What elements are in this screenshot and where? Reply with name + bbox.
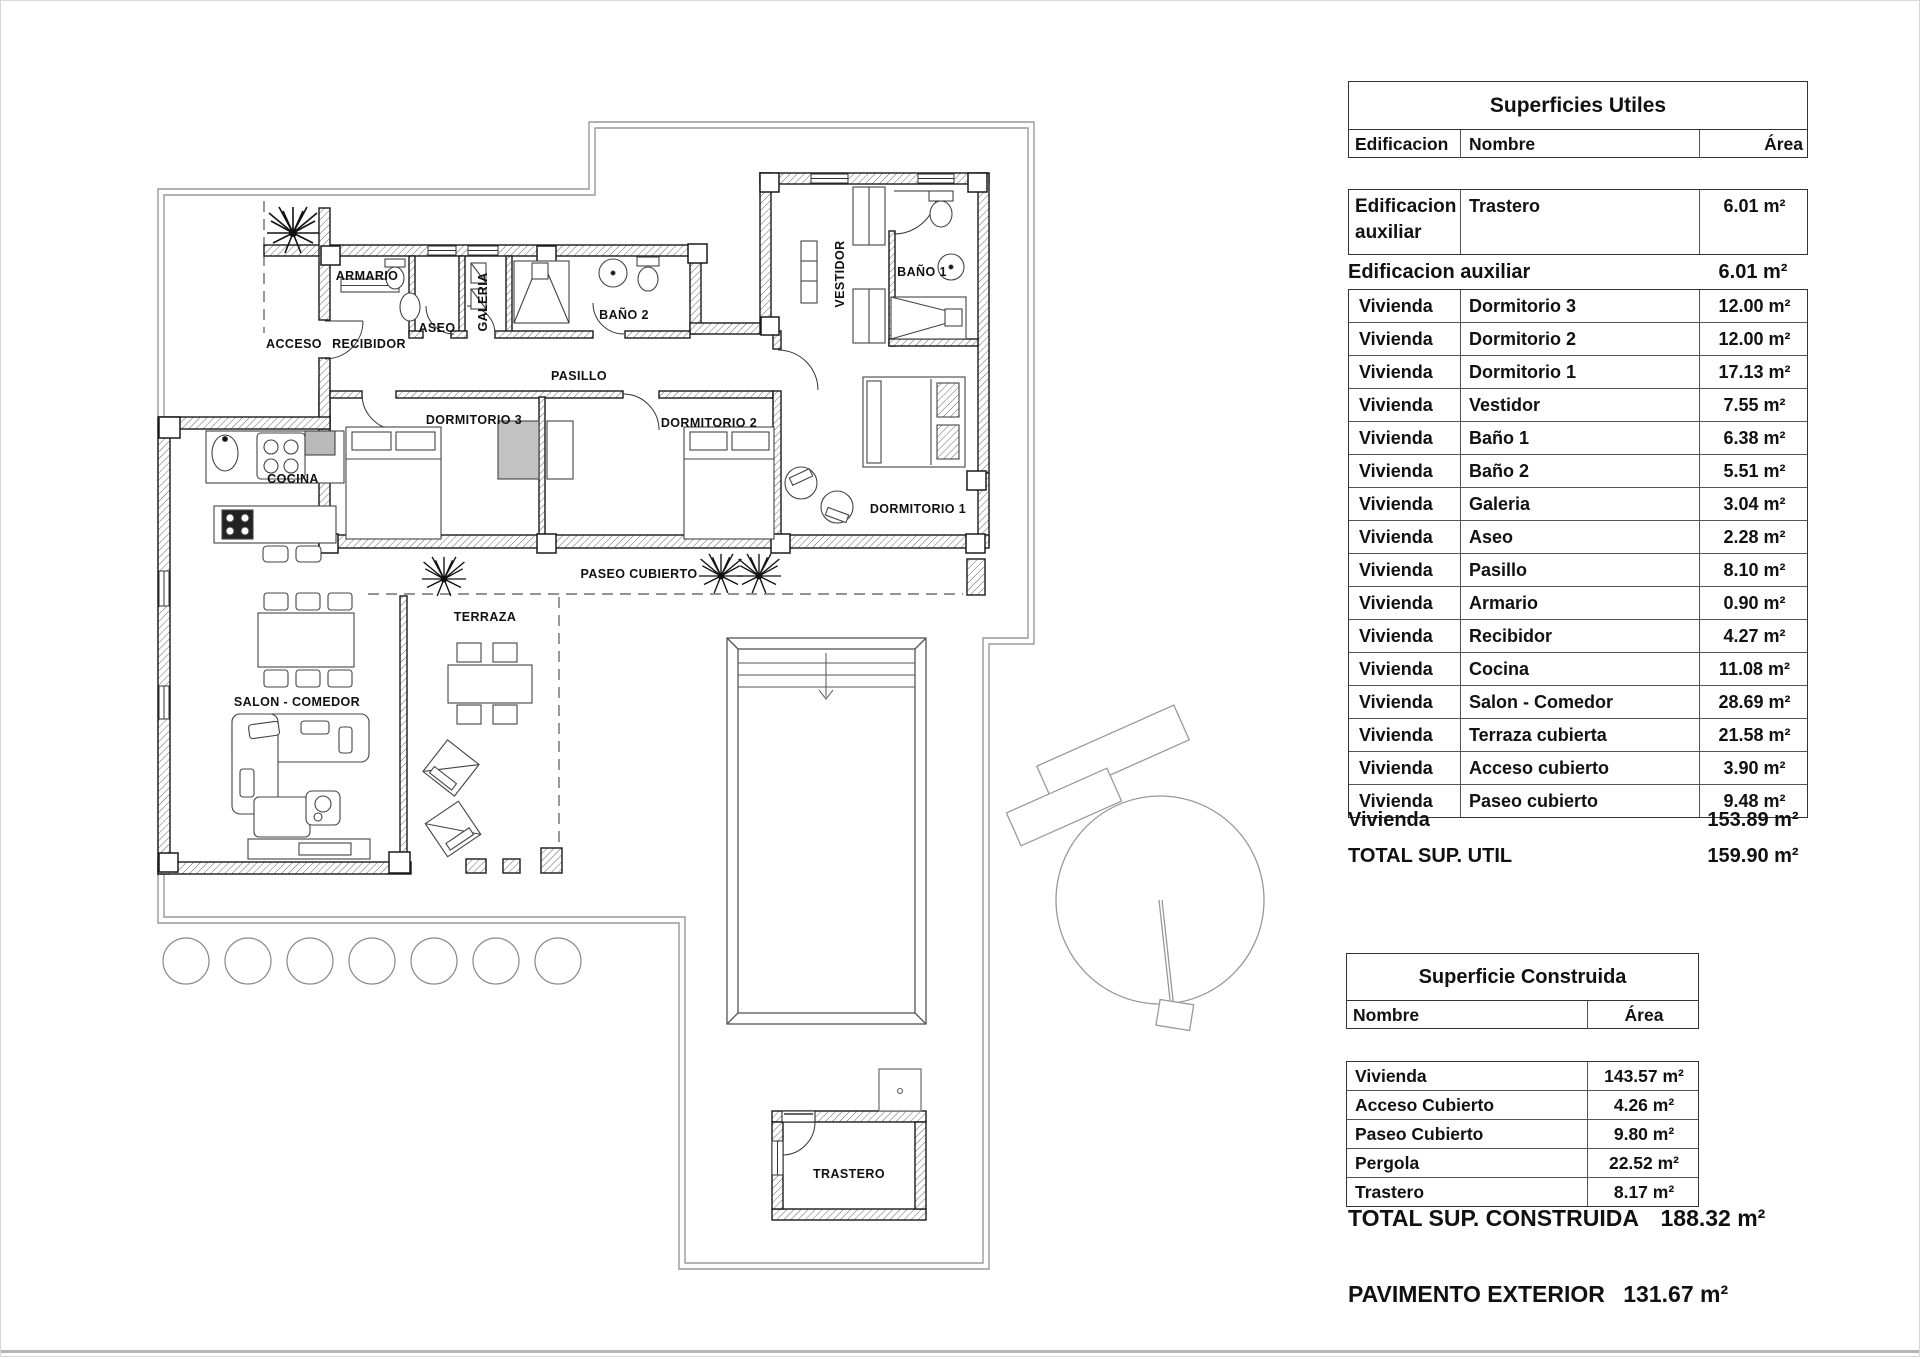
aux-row-edificacion: Edificacion auxiliar	[1349, 190, 1460, 254]
label-galeria: GALERIA	[476, 272, 490, 331]
pool	[727, 638, 926, 1024]
floor-plan-page: ARMARIO ACCESO RECIBIDOR ASEO GALERIA BA…	[0, 0, 1920, 1357]
label-dormitorio1: DORMITORIO 1	[870, 502, 966, 516]
label-paseo-cubierto: PASEO CUBIERTO	[581, 567, 698, 581]
table1-title: Superficies Utiles	[1349, 82, 1807, 130]
sink-aseo	[400, 293, 420, 321]
total-construida-row: TOTAL SUP. CONSTRUIDA 188.32 m²	[1348, 1205, 1765, 1232]
total-util-area: 159.90 m²	[1698, 845, 1808, 868]
label-dormitorio3: DORMITORIO 3	[426, 413, 522, 427]
aux-row-nombre: Trastero	[1460, 190, 1699, 254]
kitchen-island	[214, 506, 336, 562]
pergola	[1006, 705, 1264, 1030]
table1-header-area: Área	[1699, 130, 1809, 158]
trastero-building	[772, 1069, 926, 1220]
sofa	[232, 714, 369, 837]
label-cocina: COCINA	[267, 472, 319, 486]
bed-dorm3	[346, 427, 441, 539]
label-bano1: BAÑO 1	[897, 264, 947, 279]
table2-header-nombre: Nombre	[1347, 1001, 1587, 1029]
construida-rows: Vivienda143.57 m² Acceso Cubierto4.26 m²…	[1346, 1061, 1699, 1207]
table-row: ViviendaSalon - Comedor28.69 m²	[1349, 686, 1807, 719]
table-row: ViviendaGaleria3.04 m²	[1349, 488, 1807, 521]
label-pasillo: PASILLO	[551, 369, 607, 383]
total-util-row: TOTAL SUP. UTIL 159.90 m²	[1348, 839, 1808, 873]
label-aseo: ASEO	[418, 321, 455, 335]
table-row: ViviendaDormitorio 212.00 m²	[1349, 323, 1807, 356]
label-bano2: BAÑO 2	[599, 307, 649, 322]
armchair-1	[785, 467, 817, 499]
aux-summary-label: Edificacion auxiliar	[1348, 261, 1530, 284]
closet-white	[547, 421, 573, 479]
total-construida-label: TOTAL SUP. CONSTRUIDA	[1348, 1205, 1638, 1231]
label-armario: ARMARIO	[336, 269, 399, 283]
table-row: Paseo Cubierto9.80 m²	[1347, 1120, 1698, 1149]
stove	[306, 791, 340, 825]
lounge-chair-2	[425, 801, 481, 857]
bed-dorm1	[863, 377, 965, 467]
bushes-row	[163, 938, 581, 984]
table-row: ViviendaAseo2.28 m²	[1349, 521, 1807, 554]
label-terraza: TERRAZA	[454, 610, 517, 624]
vivienda-rows: ViviendaDormitorio 312.00 m² ViviendaDor…	[1348, 289, 1808, 818]
toilet-bano1	[929, 191, 953, 227]
room-labels: ARMARIO ACCESO RECIBIDOR ASEO GALERIA BA…	[234, 240, 966, 1181]
table-row: Trastero8.17 m²	[1347, 1178, 1698, 1206]
aux-row: Edificacion auxiliar Trastero 6.01 m²	[1348, 189, 1808, 255]
table1-header-edificacion: Edificacion	[1349, 130, 1460, 158]
pavimento-label: PAVIMENTO EXTERIOR	[1348, 1281, 1605, 1307]
table-row: ViviendaPasillo8.10 m²	[1349, 554, 1807, 587]
terrace-table	[448, 643, 532, 724]
label-vestidor: VESTIDOR	[833, 240, 847, 307]
bed-dorm2	[684, 427, 774, 539]
toilet-bano2	[637, 257, 659, 291]
shelves	[801, 241, 817, 303]
shower-bano1	[891, 297, 966, 339]
ac-unit	[879, 1069, 921, 1111]
table2-header-area: Área	[1587, 1001, 1700, 1029]
table-row: ViviendaDormitorio 312.00 m²	[1349, 290, 1807, 323]
lounge-chair-1	[423, 740, 479, 796]
pavimento-row: PAVIMENTO EXTERIOR 131.67 m²	[1348, 1281, 1728, 1308]
shower-bano2	[514, 261, 569, 323]
table-row: ViviendaCocina11.08 m²	[1349, 653, 1807, 686]
table1-header-nombre: Nombre	[1460, 130, 1699, 158]
page-bottom-rule	[1, 1350, 1920, 1353]
total-util-label: TOTAL SUP. UTIL	[1348, 845, 1512, 868]
vivienda-summary-label: Vivienda	[1348, 809, 1430, 832]
table-row: ViviendaBaño 16.38 m²	[1349, 422, 1807, 455]
dining-table	[258, 593, 354, 687]
table-row: ViviendaArmario0.90 m²	[1349, 587, 1807, 620]
table-row: ViviendaRecibidor4.27 m²	[1349, 620, 1807, 653]
total-construida-area: 188.32 m²	[1660, 1205, 1765, 1231]
aux-summary-area: 6.01 m²	[1698, 261, 1808, 284]
table-row: ViviendaBaño 25.51 m²	[1349, 455, 1807, 488]
pavimento-area: 131.67 m²	[1623, 1281, 1728, 1307]
vivienda-summary-area: 153.89 m²	[1698, 809, 1808, 832]
table-row: Acceso Cubierto4.26 m²	[1347, 1091, 1698, 1120]
label-salon-comedor: SALON - COMEDOR	[234, 695, 360, 709]
table-row: ViviendaAcceso cubierto3.90 m²	[1349, 752, 1807, 785]
table-row: ViviendaTerraza cubierta21.58 m²	[1349, 719, 1807, 752]
closet-gray	[498, 421, 539, 479]
table2-title: Superficie Construida	[1347, 954, 1698, 1001]
pool-steps	[738, 653, 915, 699]
table-row: Pergola22.52 m²	[1347, 1149, 1698, 1178]
label-recibidor: RECIBIDOR	[332, 337, 406, 351]
table-row: ViviendaDormitorio 117.13 m²	[1349, 356, 1807, 389]
vivienda-summary-row: Vivienda 153.89 m²	[1348, 803, 1808, 837]
label-acceso: ACCESO	[266, 337, 322, 351]
table-row: Vivienda143.57 m²	[1347, 1062, 1698, 1091]
label-dormitorio2: DORMITORIO 2	[661, 416, 757, 430]
table-row: ViviendaVestidor7.55 m²	[1349, 389, 1807, 422]
label-trastero: TRASTERO	[813, 1167, 885, 1181]
aux-row-area: 6.01 m²	[1699, 190, 1809, 254]
aux-summary-row: Edificacion auxiliar 6.01 m²	[1348, 255, 1808, 289]
